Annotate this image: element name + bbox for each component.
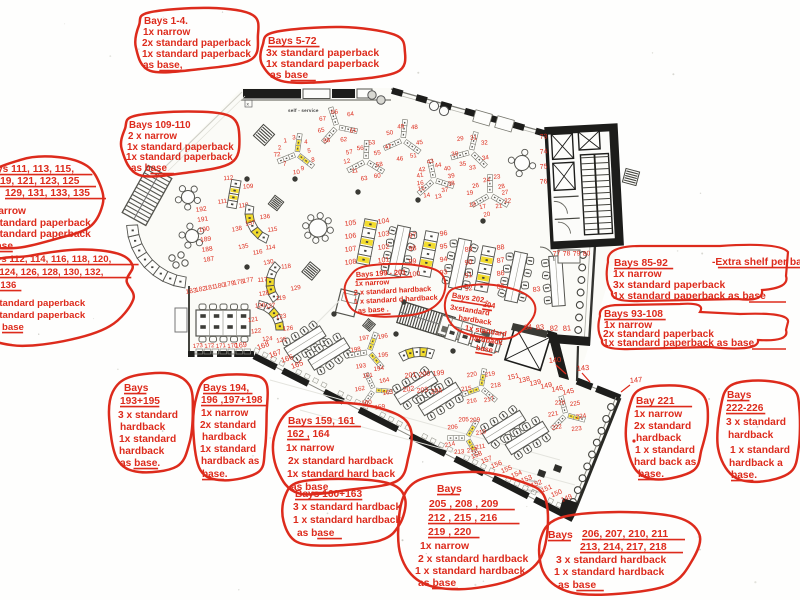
svg-text:31: 31 [470, 134, 478, 142]
svg-text:206, 207, 210, 211: 206, 207, 210, 211 [582, 529, 668, 540]
svg-text:standard paperback: standard paperback [0, 298, 86, 309]
svg-text:94: 94 [439, 256, 448, 264]
svg-text:self - service: self - service [288, 108, 319, 113]
svg-text:97: 97 [408, 232, 417, 240]
svg-text:88: 88 [496, 244, 505, 252]
svg-text:2x standard: 2x standard [200, 420, 256, 431]
svg-text:hard back as: hard back as [634, 457, 697, 468]
svg-text:83: 83 [532, 286, 541, 294]
svg-text:base: base [2, 322, 24, 333]
svg-text:66: 66 [331, 109, 339, 117]
svg-text:as base: as base [297, 528, 335, 539]
svg-text:Bays 194,: Bays 194, [203, 383, 249, 394]
svg-text:89: 89 [464, 246, 473, 254]
svg-text:, 136: , 136 [0, 280, 16, 291]
svg-text:Bays: Bays [437, 484, 462, 495]
svg-text:95: 95 [439, 243, 448, 251]
svg-text:53: 53 [368, 139, 376, 147]
svg-text:83: 83 [535, 322, 544, 332]
svg-text:76: 76 [540, 178, 548, 186]
svg-text:195: 195 [378, 351, 389, 359]
svg-text:49: 49 [397, 123, 405, 131]
svg-text:48: 48 [411, 124, 419, 132]
svg-text:219: 219 [484, 370, 496, 378]
svg-text:222-226: 222-226 [726, 403, 764, 414]
svg-text:base.: base. [731, 470, 757, 481]
svg-text:14: 14 [423, 192, 431, 200]
svg-text:91: 91 [464, 272, 473, 280]
svg-text:23: 23 [493, 173, 501, 181]
svg-text:136: 136 [259, 213, 271, 221]
svg-text:117: 117 [257, 276, 268, 284]
svg-text:67: 67 [319, 115, 327, 123]
svg-text:as base: as base [418, 578, 456, 589]
svg-text:213, 214, 217, 218: 213, 214, 217, 218 [580, 542, 667, 553]
svg-text:171: 171 [216, 343, 227, 350]
svg-text:1x narrow: 1x narrow [613, 269, 663, 280]
svg-text:78: 78 [563, 250, 571, 258]
svg-text:126: 126 [283, 325, 295, 333]
svg-text:119: 119 [276, 294, 287, 302]
svg-text:172: 172 [204, 343, 215, 350]
svg-text:3 x standard hardback: 3 x standard hardback [293, 502, 401, 513]
svg-text:3 x standard hardback: 3 x standard hardback [556, 555, 667, 566]
svg-text:37: 37 [441, 187, 449, 195]
svg-text:Bays 109-110: Bays 109-110 [129, 120, 191, 131]
svg-text:206: 206 [447, 423, 458, 431]
svg-text:3x standard paperback: 3x standard paperback [266, 48, 379, 59]
svg-text:119, 121, 123, 125: 119, 121, 123, 125 [0, 176, 80, 187]
svg-text:143: 143 [576, 363, 589, 373]
svg-text:173: 173 [193, 343, 204, 350]
svg-text:35: 35 [459, 160, 467, 168]
svg-text:Bays: Bays [548, 530, 573, 541]
svg-text:32: 32 [481, 139, 489, 147]
svg-text:Bays 85-92: Bays 85-92 [614, 258, 668, 269]
svg-text:Bays: Bays [124, 383, 149, 394]
svg-text:72: 72 [273, 151, 281, 159]
svg-text:19: 19 [466, 189, 474, 197]
svg-text:hardback as: hardback as [201, 456, 260, 467]
svg-text:114: 114 [265, 244, 276, 252]
svg-text:Bays 159, 161: Bays 159, 161 [288, 416, 355, 427]
svg-text:224: 224 [576, 412, 588, 420]
svg-text:standard paperback: standard paperback [0, 310, 86, 321]
svg-text:162 , 164: 162 , 164 [287, 429, 330, 440]
svg-text:79: 79 [573, 250, 581, 258]
svg-text:212 , 215 , 216: 212 , 215 , 216 [428, 513, 498, 524]
svg-text:1x standard paperback as base: 1x standard paperback as base [613, 291, 766, 302]
svg-text:62: 62 [340, 136, 348, 144]
svg-text:base.: base. [202, 469, 228, 480]
svg-text:22: 22 [504, 197, 512, 205]
svg-text:112: 112 [223, 174, 234, 182]
svg-text:47: 47 [384, 143, 392, 151]
svg-text:, 124, 126, 128, 130, 132,: , 124, 126, 128, 130, 132, [0, 267, 104, 278]
svg-text:Bays 5-72: Bays 5-72 [268, 36, 317, 47]
svg-text:60: 60 [374, 172, 382, 180]
svg-text:129, 131, 133, 135: 129, 131, 133, 135 [5, 188, 90, 199]
svg-text:90: 90 [464, 259, 473, 267]
svg-text:1 x standard: 1 x standard [635, 445, 695, 456]
svg-text:hardback: hardback [120, 422, 166, 433]
svg-text:213: 213 [454, 448, 465, 456]
svg-text:74: 74 [540, 148, 548, 156]
svg-text:81: 81 [562, 323, 571, 333]
svg-text:86: 86 [496, 270, 505, 278]
svg-text:1x narrow: 1x narrow [143, 27, 190, 38]
svg-text:ase: ase [0, 241, 13, 252]
svg-text:Bays: Bays [727, 390, 752, 401]
svg-text:1x standard paperback: 1x standard paperback [126, 152, 233, 163]
svg-text:75: 75 [540, 163, 548, 171]
svg-text:1 x standard hardback: 1 x standard hardback [415, 566, 526, 577]
svg-text:77: 77 [553, 250, 561, 258]
svg-text:109: 109 [243, 183, 254, 191]
svg-text:193+195: 193+195 [120, 396, 160, 407]
svg-text:ys 112, 114, 116, 118, 120,: ys 112, 114, 116, 118, 120, [0, 254, 112, 265]
svg-text:hardback: hardback [636, 433, 682, 444]
svg-text:194: 194 [373, 365, 385, 373]
svg-text:147: 147 [629, 375, 642, 385]
svg-text:226: 226 [555, 399, 566, 407]
svg-text:as base,: as base, [143, 60, 183, 71]
svg-text:3x standard paperback: 3x standard paperback [613, 280, 725, 291]
svg-text:1x narrow: 1x narrow [420, 541, 470, 552]
svg-text:1x standard: 1x standard [200, 444, 256, 455]
svg-text:122: 122 [251, 327, 263, 335]
svg-text:96: 96 [439, 230, 448, 238]
svg-text:1x standard: 1x standard [119, 434, 176, 445]
svg-text:hardback: hardback [728, 430, 774, 441]
svg-text:1x narrow: 1x narrow [634, 409, 682, 420]
svg-text:219 , 220: 219 , 220 [428, 527, 472, 538]
svg-text:2 x narrow: 2 x narrow [128, 131, 177, 142]
svg-text:51: 51 [410, 152, 418, 160]
svg-text:hardback: hardback [119, 446, 165, 457]
svg-text:as base: as base [270, 70, 308, 81]
svg-text:63: 63 [360, 175, 368, 183]
svg-text:2x standard: 2x standard [634, 421, 691, 432]
svg-text:1x standard paperback as bas: 1x standard paperback as base [603, 338, 755, 349]
svg-text:87: 87 [496, 257, 505, 265]
svg-text:16: 16 [416, 180, 424, 188]
svg-text:1x narrow: 1x narrow [286, 443, 334, 454]
svg-text:223: 223 [571, 425, 583, 433]
svg-text:narrow: narrow [0, 206, 26, 217]
svg-text:98: 98 [408, 245, 417, 253]
svg-text:as base: as base [558, 580, 596, 591]
svg-text:161: 161 [362, 372, 373, 380]
svg-text:118: 118 [281, 263, 292, 271]
svg-text:10: 10 [293, 169, 301, 177]
svg-text:1 x standard hardback: 1 x standard hardback [554, 567, 665, 578]
svg-text:as base: as base [131, 163, 168, 174]
svg-text:Bays 160+163: Bays 160+163 [295, 489, 362, 500]
svg-text:base.: base. [638, 469, 664, 480]
svg-text:73: 73 [540, 133, 548, 141]
svg-text:209: 209 [470, 416, 481, 424]
svg-text:3 x standard: 3 x standard [118, 410, 178, 421]
svg-text:2x standard hardback: 2x standard hardback [288, 456, 394, 467]
svg-text:82: 82 [549, 323, 558, 333]
svg-text:Bays 93-108: Bays 93-108 [604, 309, 663, 320]
svg-text:215: 215 [461, 385, 473, 393]
svg-text:hardback: hardback [202, 432, 247, 443]
svg-text:198: 198 [350, 346, 362, 354]
svg-text:2 x standard hardback: 2 x standard hardback [418, 554, 529, 565]
svg-text:169: 169 [234, 340, 247, 350]
svg-text:225: 225 [570, 400, 582, 408]
svg-text:56: 56 [356, 145, 364, 153]
svg-text:Bays 1-4.: Bays 1-4. [144, 16, 188, 27]
svg-text:193: 193 [355, 362, 367, 370]
svg-text:as base .: as base . [358, 304, 389, 315]
svg-text:Bay 221: Bay 221 [636, 396, 675, 407]
svg-text:123: 123 [276, 313, 288, 321]
svg-text:24: 24 [483, 177, 491, 185]
svg-text:-Extra shelf per bay: -Extra shelf per bay [712, 257, 800, 268]
svg-text:1 x standard hardback: 1 x standard hardback [293, 515, 401, 526]
svg-text:1x standard paperback: 1x standard paperback [142, 49, 251, 60]
svg-text:140: 140 [548, 355, 561, 365]
svg-text:196 ,197+198: 196 ,197+198 [201, 395, 263, 406]
svg-text:121: 121 [247, 316, 259, 324]
svg-text:hardback a: hardback a [729, 458, 783, 469]
svg-text:2x standard paperback: 2x standard paperback [142, 38, 251, 49]
svg-text:1x narrow: 1x narrow [201, 408, 248, 419]
svg-text:standard paperback: standard paperback [0, 229, 91, 240]
svg-text:1x standard paperback: 1x standard paperback [266, 59, 379, 70]
svg-text:1 x standard: 1 x standard [730, 445, 790, 456]
svg-text:205 , 208 , 209: 205 , 208 , 209 [429, 499, 499, 510]
svg-text:218: 218 [490, 382, 502, 390]
svg-text:standard paperback: standard paperback [0, 218, 91, 229]
svg-text:3 x standard: 3 x standard [726, 417, 786, 428]
svg-text:197: 197 [359, 334, 371, 342]
svg-text:205: 205 [458, 416, 469, 424]
svg-text:as base.: as base. [120, 458, 160, 469]
svg-text:80: 80 [583, 250, 591, 258]
svg-text:ys 111, 113, 115,: ys 111, 113, 115, [0, 164, 74, 175]
svg-text:21: 21 [495, 203, 503, 211]
svg-text:115: 115 [267, 226, 278, 234]
